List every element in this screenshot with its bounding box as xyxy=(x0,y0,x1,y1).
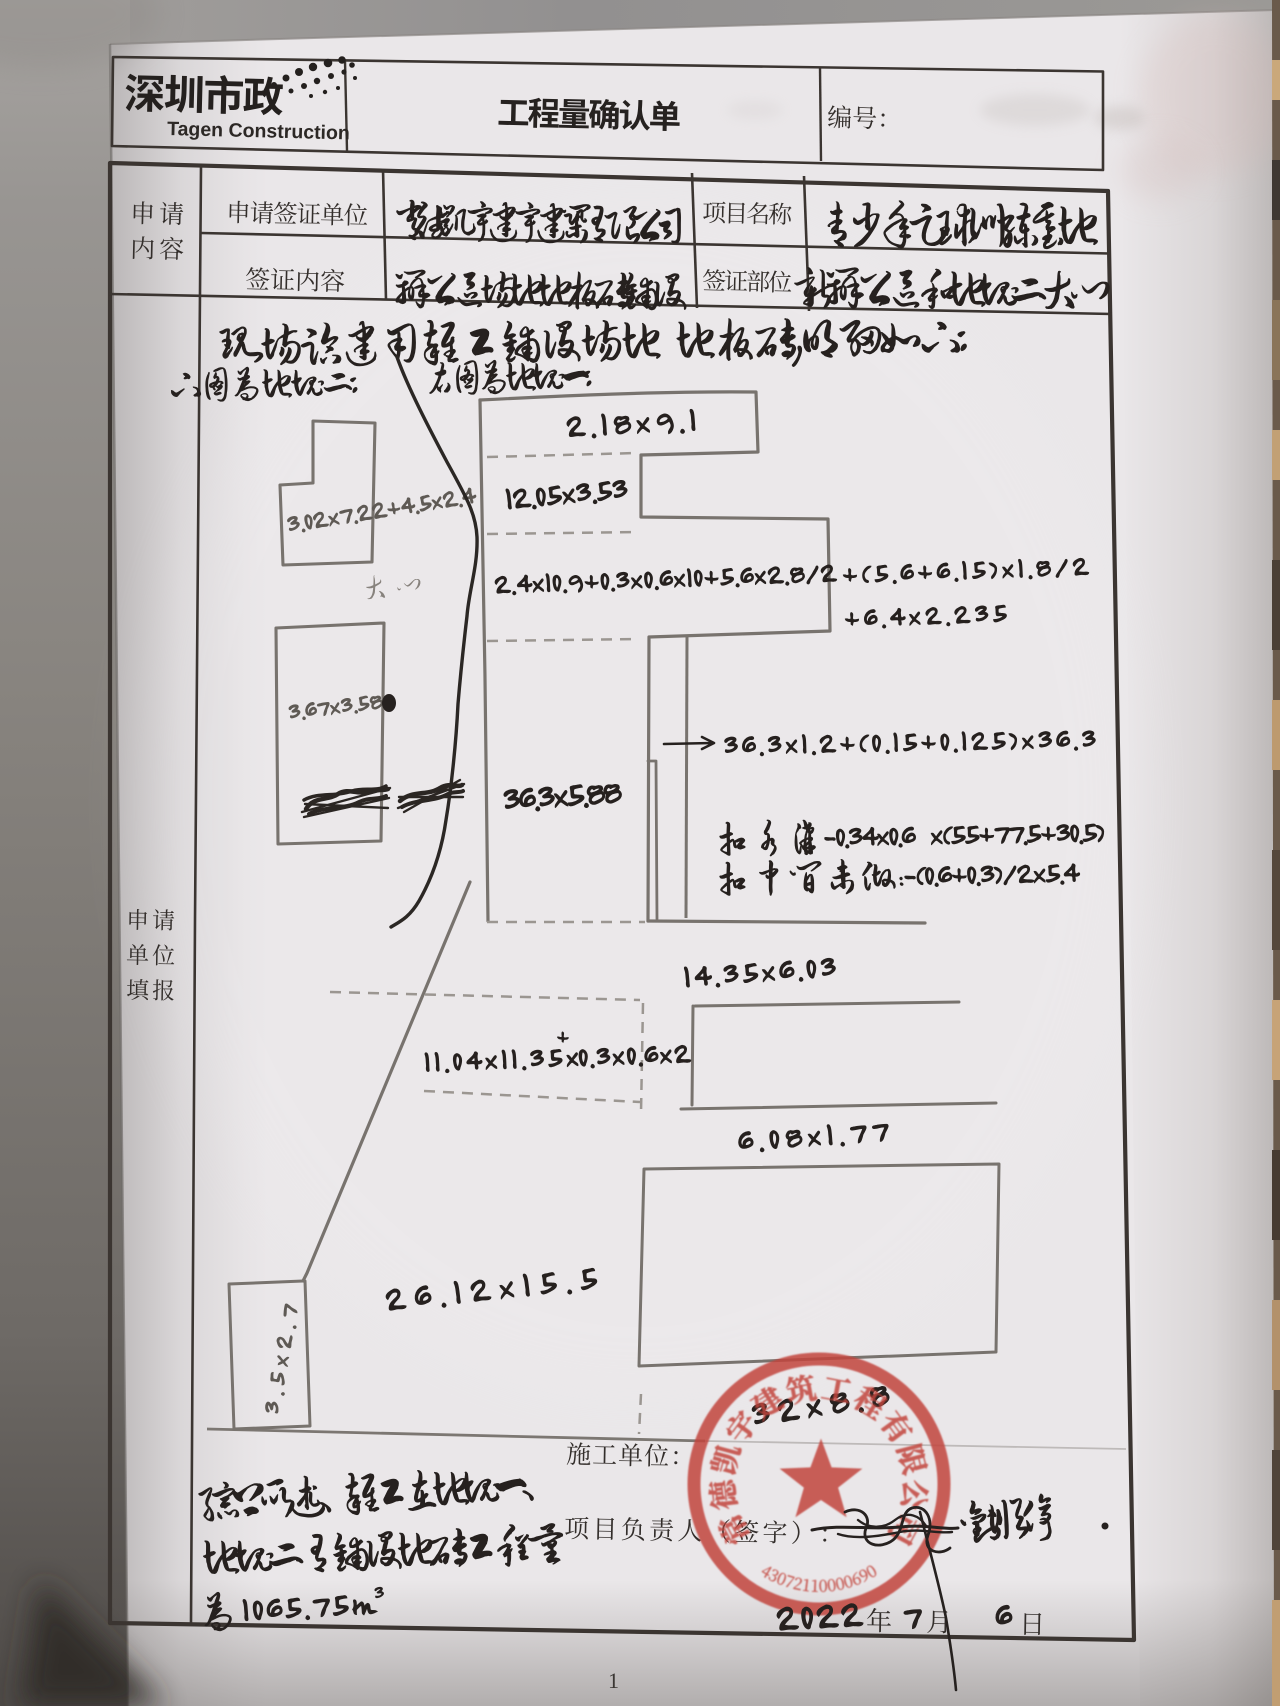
svg-text:1: 1 xyxy=(608,1668,619,1693)
svg-text:Tagen Construction: Tagen Construction xyxy=(167,118,350,144)
